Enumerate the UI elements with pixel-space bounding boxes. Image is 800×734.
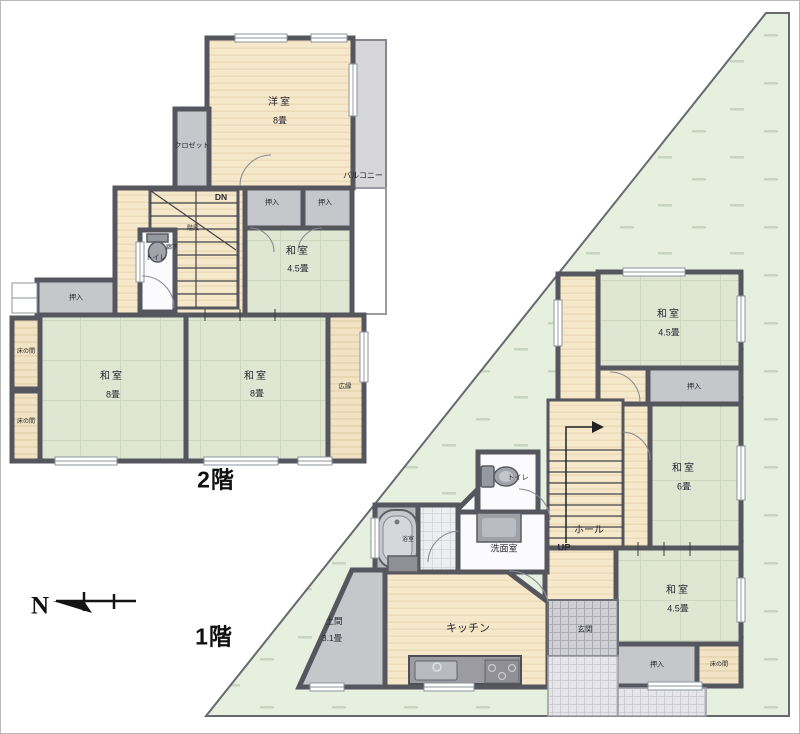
floor1-title: 1階 <box>195 626 233 649</box>
label-stairs-up: UP <box>557 543 570 553</box>
corridor-north-1f <box>558 274 600 404</box>
label-oshiire-2f-a: 押入 <box>265 200 279 207</box>
hall-1f <box>545 548 618 602</box>
label-washitsu45-2f-size: 4.5畳 <box>287 265 309 274</box>
label-bath: 浴室 <box>402 537 414 543</box>
label-washitsu8-east: 和室 <box>244 372 268 382</box>
label-washitsu8-west: 和室 <box>100 372 124 382</box>
genkan-approach <box>548 656 618 716</box>
side-walkway <box>618 688 706 716</box>
compass-arrow <box>53 592 136 613</box>
label-oshiire-south-1f: 押入 <box>650 662 664 669</box>
water-heater <box>388 556 418 572</box>
label-balcony: バルコニー <box>343 172 383 180</box>
label-yoshitsu-size: 8畳 <box>273 117 287 126</box>
floor2-plan <box>12 34 386 465</box>
label-washitsu6-size: 6畳 <box>677 483 691 492</box>
label-genkan: 玄関 <box>578 625 593 633</box>
room-washitsu-4-5-south <box>616 548 741 648</box>
label-doma: 土間 <box>325 617 342 626</box>
label-washroom: 洗面室 <box>490 545 517 554</box>
label-hiroen: 広縁 <box>339 384 352 391</box>
balcony-rail <box>353 188 386 314</box>
label-doma-size: 3.1畳 <box>322 634 342 643</box>
label-oshiire-west-2f: 押入 <box>69 295 83 302</box>
room-washitsu-6 <box>650 404 741 548</box>
label-kitchen: キッチン <box>446 624 490 635</box>
oshiire-2f-a <box>245 188 305 228</box>
label-tokonoma-2f-a: 床の間 <box>17 349 35 355</box>
oshiire-2f-b <box>303 188 352 228</box>
label-washitsu45-south: 和室 <box>666 586 690 596</box>
label-hall: ホール <box>574 526 604 536</box>
label-closet-2f: クロゼット <box>175 143 210 150</box>
label-tokonoma-2f-b: 床の間 <box>17 419 35 425</box>
washbasin <box>477 513 521 542</box>
label-washitsu45-2f: 和室 <box>286 247 310 257</box>
bath-tile-area <box>418 505 458 572</box>
label-yoshitsu: 洋室 <box>268 98 292 108</box>
floorplan-drawing <box>0 0 800 734</box>
label-washitsu45-north-size: 4.5畳 <box>658 329 680 338</box>
room-yoshitsu <box>207 38 353 188</box>
kitchen-counter <box>409 656 521 684</box>
label-washitsu6: 和室 <box>672 464 696 474</box>
label-oshiire-2f-b: 押入 <box>318 200 332 207</box>
room-washitsu-4-5-north <box>598 272 741 370</box>
label-kaidan: 階段 <box>187 226 199 232</box>
label-rouka: 廊下 <box>166 245 178 251</box>
label-toilet-2f: トイレ <box>146 255 167 262</box>
floorplan-image: 洋室 8畳 クロゼット バルコニー DN 階段 廊下 トイレ 押入 押入 押入 … <box>0 0 800 734</box>
tokonoma-2f-b <box>12 391 40 461</box>
label-toilet-1f: トイレ <box>508 475 529 482</box>
floor2-title: 2階 <box>197 469 235 492</box>
label-oshiire-north-1f: 押入 <box>687 384 701 391</box>
room-washitsu-8-west <box>40 315 188 461</box>
label-washitsu8-east-size: 8畳 <box>250 390 264 399</box>
label-stairs-dn: DN <box>215 193 227 202</box>
label-washitsu8-west-size: 8畳 <box>106 391 120 400</box>
label-washitsu45-north: 和室 <box>657 310 681 320</box>
label-tokonoma-1f: 床の間 <box>710 662 728 668</box>
label-washitsu45-south-size: 4.5畳 <box>667 605 689 614</box>
compass-north-label: N <box>31 594 49 619</box>
